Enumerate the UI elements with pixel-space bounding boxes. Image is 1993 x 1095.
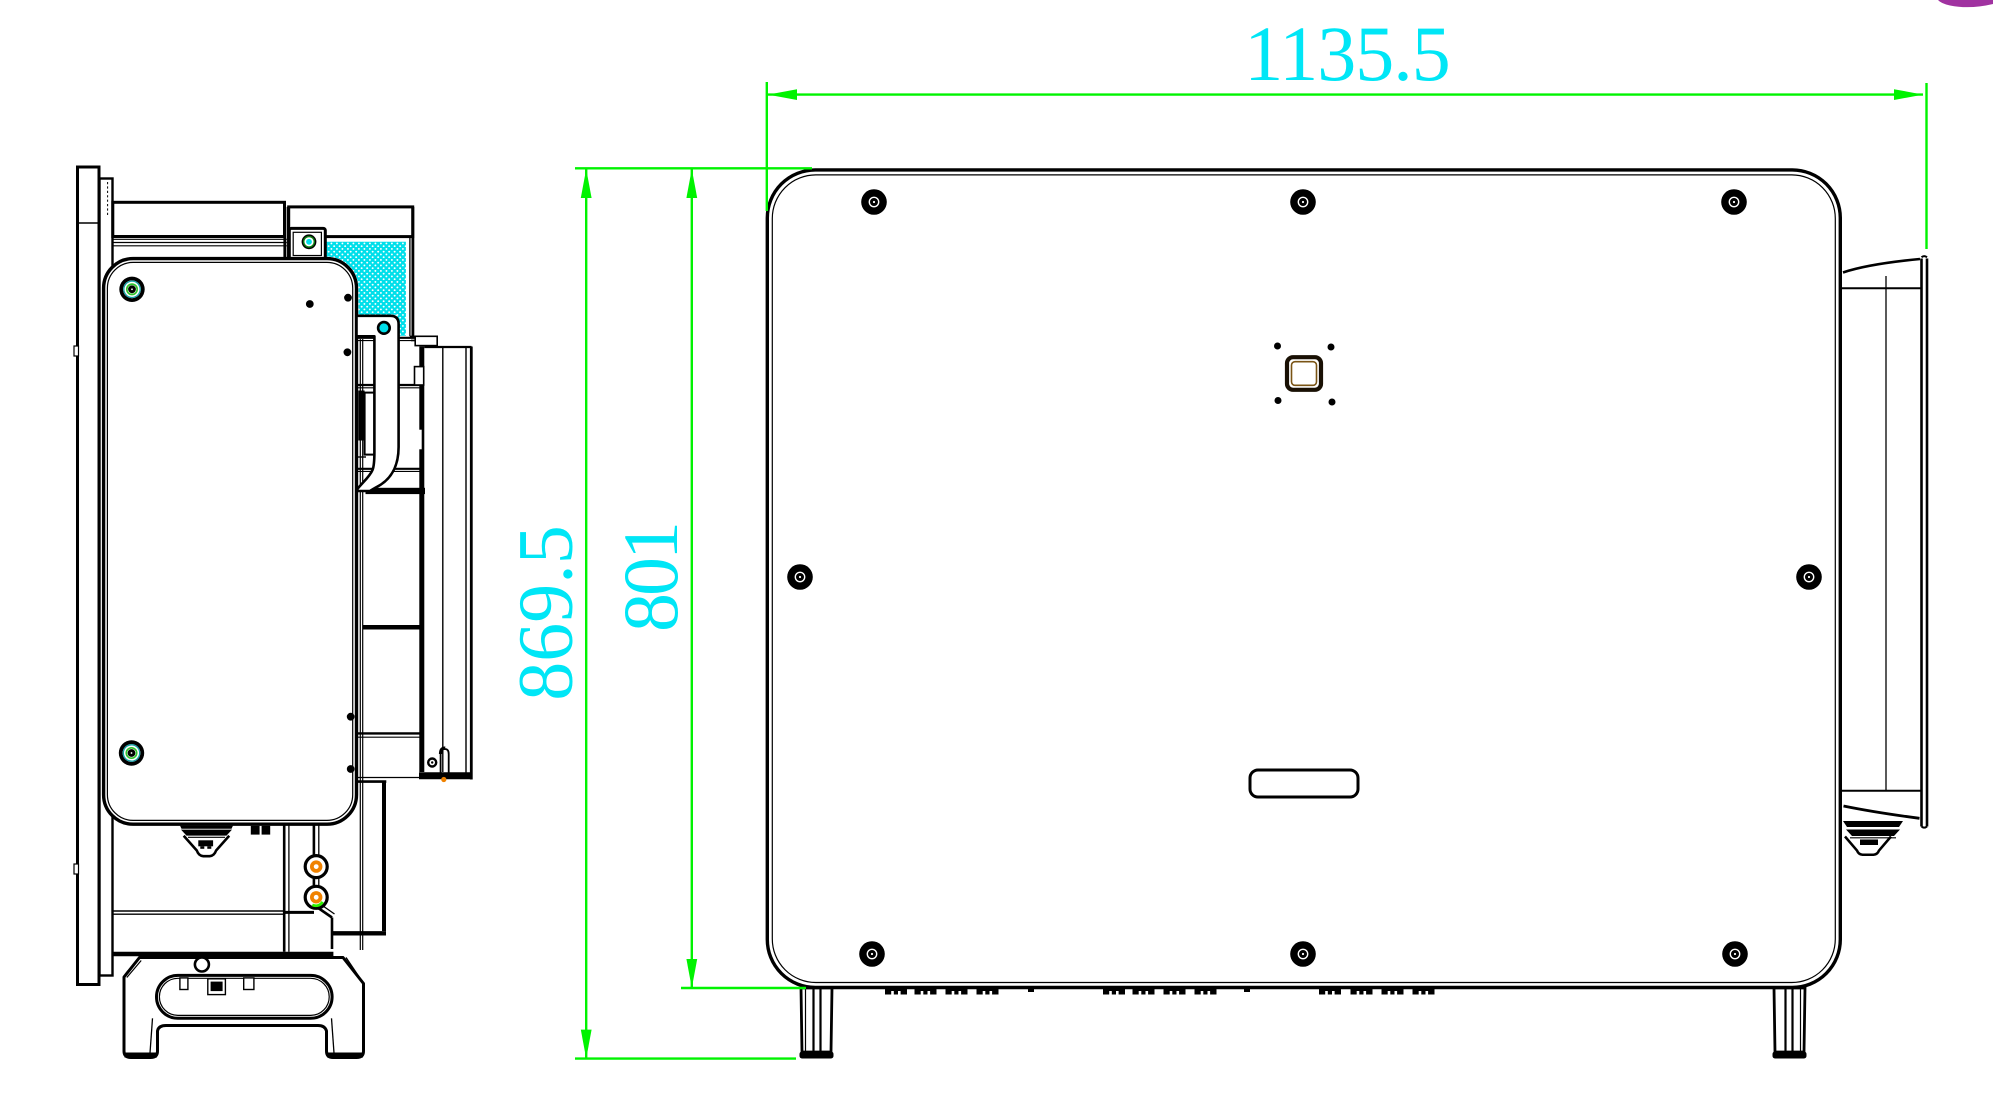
svg-text:869.5: 869.5 [502,525,589,701]
svg-text:801: 801 [607,524,694,632]
svg-text:1135.5: 1135.5 [1244,10,1450,97]
